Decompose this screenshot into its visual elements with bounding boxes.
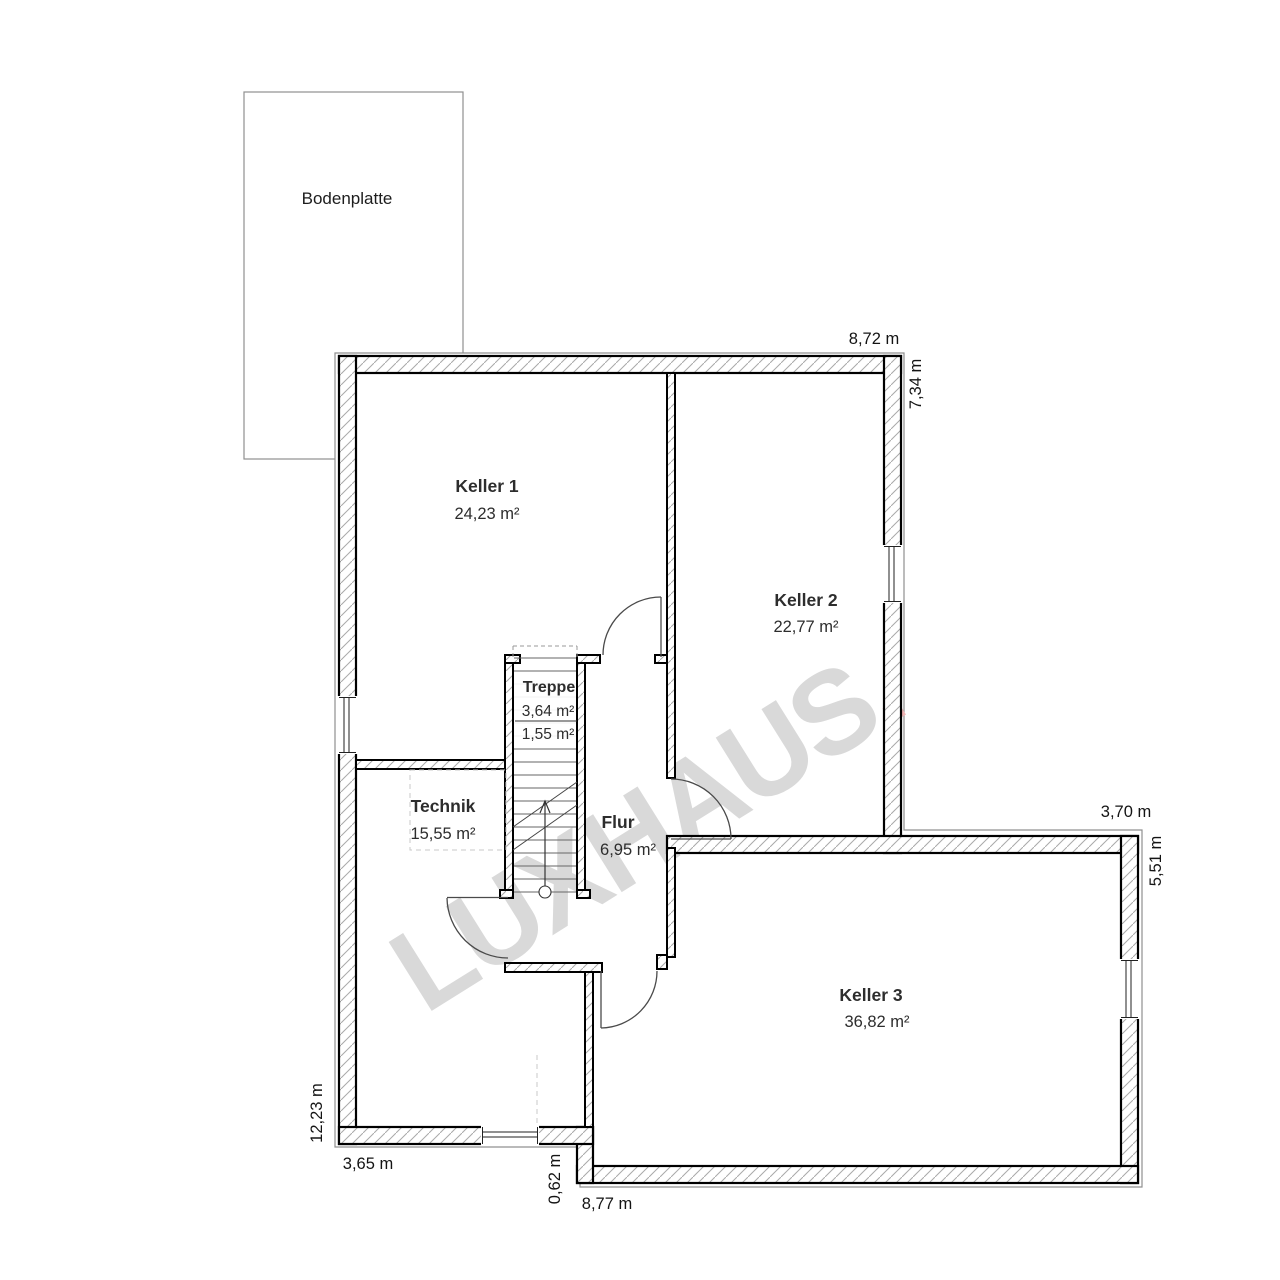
- dimension-extension-right: 5,51 m: [1147, 836, 1165, 886]
- wall-keller1-keller2: [667, 373, 675, 778]
- dimension-top: 8,72 m: [849, 330, 899, 348]
- bodenplatte-label: Bodenplatte: [302, 189, 393, 208]
- wall-stair-left-bottom-stub: [500, 890, 513, 898]
- wall-exterior-right-upper: [884, 356, 901, 853]
- room-name-technik: Technik: [411, 796, 476, 816]
- room-name-keller1: Keller 1: [455, 476, 518, 496]
- floorplan-page: Bodenplatte LUXHAUS.: [0, 0, 1280, 1280]
- room-name-treppe: Treppe: [523, 679, 576, 696]
- room-area-keller2: 22,77 m²: [773, 618, 839, 636]
- window-technik-bottom: [481, 1124, 539, 1146]
- dimension-bottom: 8,77 m: [582, 1195, 632, 1213]
- wall-flur-bottom: [505, 963, 602, 972]
- room-name-keller2: Keller 2: [774, 590, 837, 610]
- wall-exterior-top: [339, 356, 901, 373]
- wall-keller2-bottom: [667, 836, 1138, 853]
- room-name-keller3: Keller 3: [839, 985, 902, 1005]
- wall-stair-right-top-stub: [577, 655, 600, 663]
- wall-stair-right-bottom-stub: [577, 890, 590, 898]
- floorplan-drawing: Bodenplatte LUXHAUS.: [0, 0, 1280, 1280]
- room-area-treppe-upper: 3,64 m²: [522, 703, 575, 720]
- window-keller3-right: [1118, 959, 1140, 1019]
- room-area-technik: 15,55 m²: [410, 825, 476, 843]
- wall-keller1-technik: [356, 760, 513, 769]
- window-keller2-right: [881, 545, 903, 603]
- wall-technik-bottom: [339, 1127, 593, 1144]
- wall-technik-keller3: [585, 963, 593, 1127]
- room-area-treppe-lower: 1,55 m²: [522, 726, 575, 743]
- stair-start-circle: [539, 886, 551, 898]
- dimension-left: 12,23 m: [308, 1083, 326, 1143]
- wall-notch-flur-keller3: [657, 955, 667, 969]
- room-area-flur: 6,95 m²: [600, 841, 656, 859]
- wall-flur-keller3: [667, 848, 675, 957]
- wall-stair-right: [577, 655, 585, 898]
- dimension-bottom-left: 3,65 m: [343, 1155, 393, 1173]
- room-area-keller3: 36,82 m²: [844, 1013, 910, 1031]
- dimension-extension-top: 3,70 m: [1101, 803, 1151, 821]
- wall-keller3-bottom: [577, 1166, 1138, 1183]
- dimension-step: 0,62 m: [546, 1154, 564, 1204]
- window-keller1-left: [336, 696, 358, 754]
- dimension-right-upper: 7,34 m: [907, 359, 925, 409]
- room-name-flur: Flur: [601, 812, 634, 832]
- room-area-keller1: 24,23 m²: [454, 505, 520, 523]
